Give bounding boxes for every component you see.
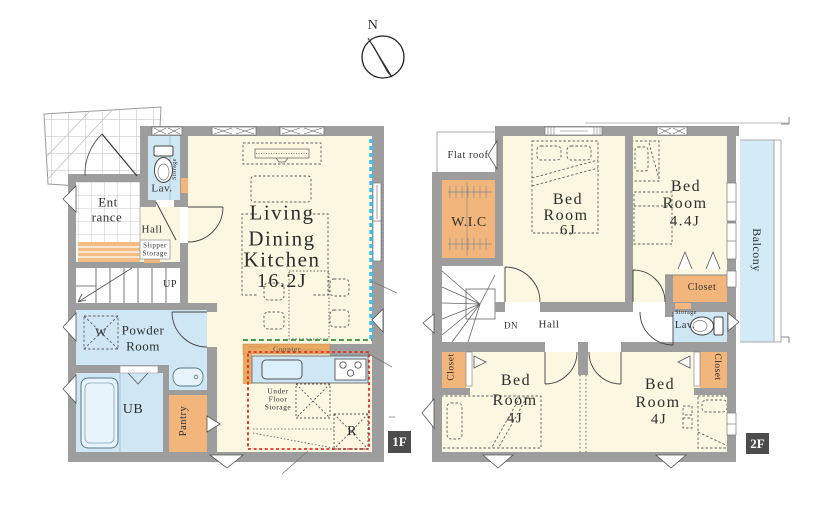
slipper-storage-label-line2: Storage [143,251,168,258]
toilet-1f-icon [154,146,173,183]
closet-east-label: Closet [711,353,721,380]
entrance-label-line1: Ent [98,196,118,209]
stairs-down-label: DN [504,322,518,331]
floor2-drawing [422,117,789,468]
bed6-size-label: 6J [560,224,576,239]
bed4-east-size-label: 4J [651,413,667,428]
floor1-drawing [44,107,397,474]
flat-roof-label: Flat roof [448,151,489,162]
lav-1f-label: Lav. [151,184,172,195]
kitchen-sink [262,360,302,379]
refrigerator-label: R [347,425,357,439]
ldk-size-label: 16.2J [257,271,307,291]
bed4-west-label-line1: Bed [501,373,531,389]
shelf [181,178,188,193]
pantry-label: Pantry [179,406,190,436]
ldk-label-line2: Dining [248,229,315,250]
ldk-label-line1: Living [250,203,315,224]
bed4-east-label-line2: Room [635,395,680,411]
room-hall-2f [495,310,673,342]
entrance-label-line2: rance [92,211,123,224]
bed44-label-line2: Room [662,196,707,212]
hall-1f-label: Hall [142,225,163,236]
lav-storage-2f-label: Storage [675,310,697,316]
bed44-size-label: 4.4J [670,215,701,230]
toilet-2f-icon [691,317,724,335]
shelf [675,303,691,309]
powder-room-label-line2: Room [126,340,160,353]
closet-main-label: Closet [688,283,717,293]
stairs-up-label: UP [163,280,177,290]
bed4-west-size-label: 4J [507,412,523,427]
hall-2f-label: Hall [539,320,560,331]
floor2-badge: 2F [746,433,769,454]
counter-label: Counter [273,345,301,353]
bed44-label-line1: Bed [671,179,701,195]
ldk-label-line3: Kitchen [244,250,321,271]
compass-icon [362,36,404,78]
slipper-storage-label-line1: Slipper [143,243,167,250]
washbasin [173,368,203,386]
bed4-east-label-line1: Bed [645,377,675,393]
wic-label: W.I.C [451,216,486,230]
unit-bath-label: UB [123,403,143,417]
compass-north-label: N [368,19,379,33]
bathtub [81,378,118,448]
floor-plan: N Ent rance Hall Lav. Storage Slipper St… [0,0,815,530]
powder-room-label-line1: Powder [122,324,165,337]
closet-west-label: Closet [447,353,457,380]
lav-2f-label: Lav. [675,321,695,332]
bed4-west-label-line2: Room [492,393,537,409]
bed6-label-line1: Bed [553,192,583,208]
lav-storage-1f-label: Storage [172,158,178,180]
balcony-label: Balcony [751,228,763,272]
washer-label: W [95,326,107,338]
floor1-badge: 1F [388,431,411,453]
under-floor-storage-label-line3: Storage [265,403,291,411]
